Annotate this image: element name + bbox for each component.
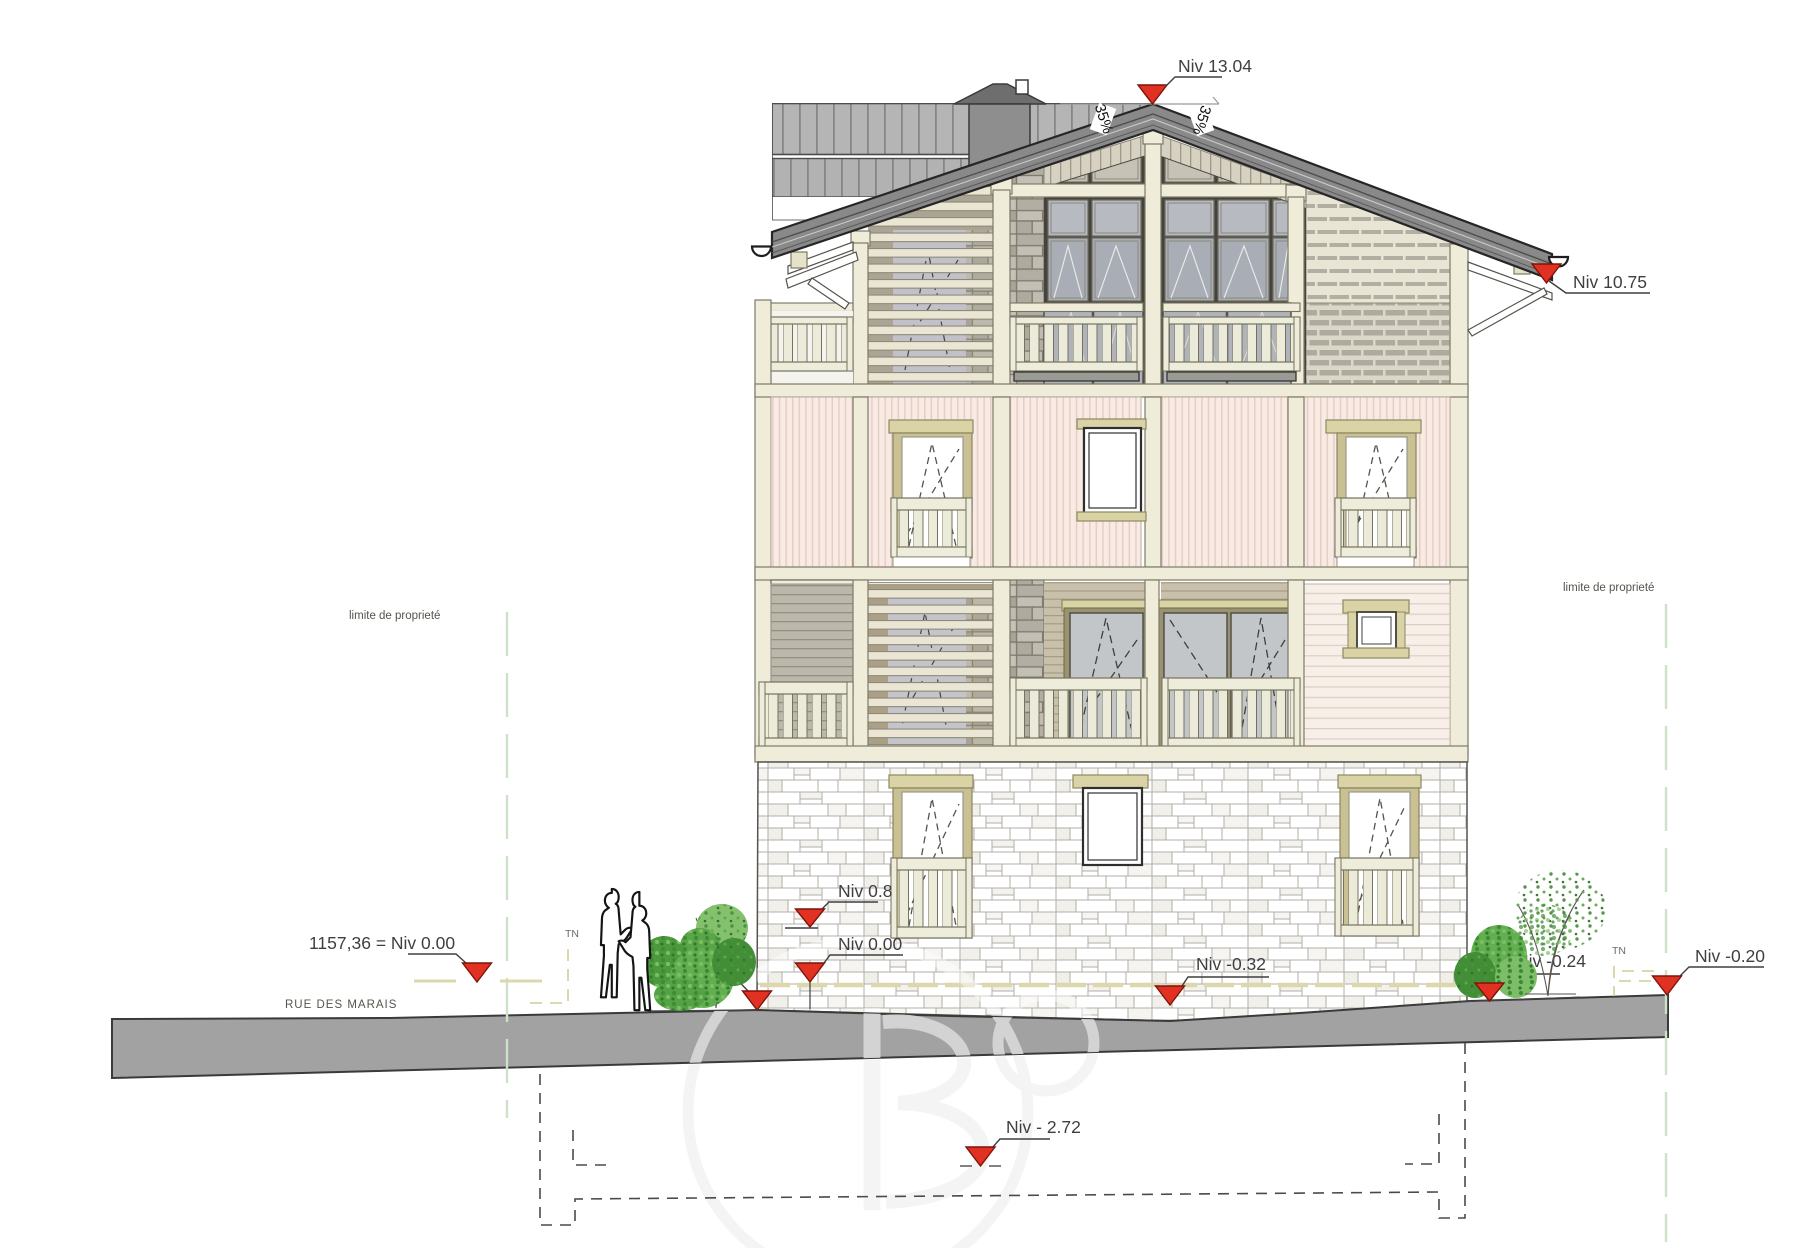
svg-text:Niv 0.00: Niv 0.00	[838, 934, 902, 954]
svg-text:Niv -0.32: Niv -0.32	[1196, 954, 1266, 974]
svg-text:TN: TN	[565, 928, 579, 940]
svg-text:TN: TN	[1612, 945, 1626, 957]
svg-text:Niv 10.75: Niv 10.75	[1573, 272, 1647, 292]
svg-text:limite de proprieté: limite de proprieté	[1563, 582, 1654, 594]
svg-text:Niv 0.8: Niv 0.8	[838, 881, 892, 901]
svg-text:RUE DES MARAIS: RUE DES MARAIS	[285, 999, 397, 1011]
svg-text:limite de proprieté: limite de proprieté	[349, 610, 440, 622]
svg-text:1157,36 = Niv 0.00: 1157,36 = Niv 0.00	[309, 933, 455, 953]
svg-text:Niv - 2.72: Niv - 2.72	[1006, 1117, 1081, 1137]
svg-text:Niv 13.04: Niv 13.04	[1178, 56, 1252, 76]
svg-text:Niv -0.20: Niv -0.20	[1695, 946, 1765, 966]
